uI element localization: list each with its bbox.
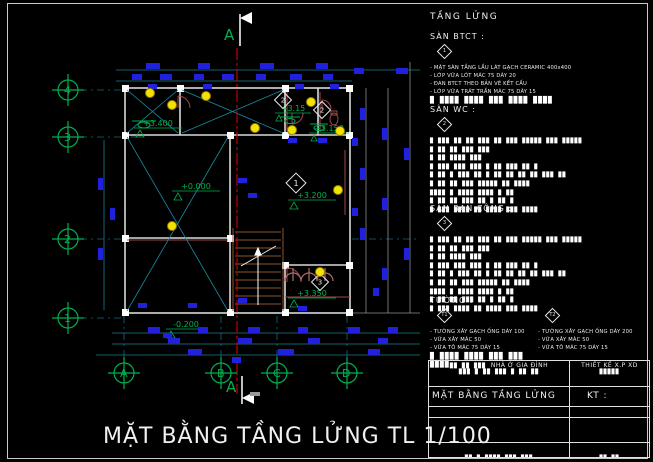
ceiling-light-icon [251,124,260,133]
dimension-value-block [163,333,172,338]
notes-section-tuong: TƯỜNG : T1 - TƯỜNG XÂY GẠCH ỐNG DÀY 100 … [430,296,648,368]
dimension-value-block [382,128,387,140]
titleblock-row3-right: ██ ███ [570,407,649,418]
ceiling-light-icon [336,127,345,136]
illegible-text-line: █ ██ ██ ███ ███ [430,146,648,155]
notes-section-san-btct: SÀN BTCT : 1 - MẶT SÀN TẦNG LẦU LÁT GẠCH… [430,32,648,104]
illegible-text-line: █ ███ ██ ██ ███ ██ ███ █████ ███ █████ [430,236,648,245]
dimension-value-block [295,84,304,89]
notes-section-san-wc: SÀN WC : 2 █ ███ ██ ██ ███ ██ ███ █████ … [430,105,648,214]
illegible-text-line: █ ███ ███ ███ █ ██ ███ ██ █ [430,163,648,172]
ceiling-light-icon [168,222,177,231]
dimension-value-block [98,178,103,190]
svg-text:B: B [217,367,225,380]
dimension-value-block [110,208,115,220]
dimension-value-block [308,338,320,344]
dimension-value-block [382,198,387,210]
dimension-value-block [354,68,364,74]
ceiling-light-icon [168,101,177,110]
cad-drawing-canvas: A A 4 3 2 1 A B C D [0,0,653,462]
dimension-value-block [352,138,358,146]
illegible-text-line: █ ██ ██ ███ █████ ██ ████ [430,279,648,288]
dimension-value-block [318,138,327,143]
section-label: SÀN BTCT : [430,32,648,41]
illegible-text-line: █ ██ ██ ███ ███ [430,245,648,254]
titleblock-row4-right [570,418,649,443]
dimension-value-block [198,327,208,333]
svg-text:3: 3 [64,131,71,144]
dimension-value-block [290,74,302,80]
dimension-value-block [188,303,197,308]
illegible-text-line: █ ██ ████ ███ [430,253,648,262]
illegible-text-line: █ ██ █ ███ ██ █ ██ ██ ██ ██ ███ ██ [430,270,648,279]
dimension-value-block [132,74,142,80]
ceiling-light-icon [202,92,211,101]
toilet-fixture [330,111,338,125]
svg-text:2: 2 [281,97,285,105]
illegible-text-line: ████ █ ████ ████ █ ██ [430,288,648,297]
dimension-value-block [278,349,294,355]
illegible-text-line: █ ███ ██ ██ ███ ██ ███ █████ ███ █████ [430,137,648,146]
svg-text:1: 1 [64,312,71,325]
svg-text:C: C [273,367,281,380]
svg-text:+0.000: +0.000 [181,182,211,191]
svg-text:2: 2 [64,233,71,246]
svg-text:A: A [120,367,128,380]
ceiling-light-icon [146,89,155,98]
titleblock-designer-cell: THIẾT KẾ X.P XD █████ [570,361,649,387]
dimension-value-block [238,178,247,183]
svg-text:+3.200: +3.200 [297,191,327,200]
dimension-value-block [360,168,365,180]
titleblock-project-cell: ██ ██ ███ NHÀ Ở GIA ĐÌNH ███ █ ██ ███ █ … [429,361,570,387]
titleblock-drawing-name-cell: MẶT BẰNG TẦNG LỬNG [429,387,570,407]
dimension-text-blocks [98,63,409,363]
svg-text:+3.15: +3.15 [281,104,306,113]
illegible-bar: █ ████ ████ ███ ████ ████ [430,96,648,104]
dimension-value-block [256,74,266,80]
dimension-value-block [232,357,241,363]
dimension-value-block [360,228,365,240]
dimension-value-block [238,338,252,344]
dimension-value-block [160,74,172,80]
dimension-value-block [298,327,308,333]
dimension-value-block [98,248,103,260]
wall-marker-diamond-icon: T1 [437,308,453,324]
titleblock-row5-right: ██ ██ [570,443,649,457]
dimension-value-block [330,84,339,89]
dimension-value-block [248,327,260,333]
dimension-value-block [138,303,147,308]
svg-text:D: D [342,367,350,380]
svg-text:+3.400: +3.400 [143,119,173,128]
dimension-value-block [222,74,234,80]
section-label: SÀN WC : [430,105,648,114]
ceiling-light-icon [316,268,325,277]
dimension-value-block [316,63,328,69]
svg-text:3: 3 [318,279,322,287]
dimension-value-block [378,338,388,344]
svg-text:-0.200: -0.200 [173,320,199,329]
dimension-value-block [404,248,409,260]
dimension-value-block [352,208,358,216]
dimension-value-block [198,63,210,69]
dimension-value-block [238,298,247,303]
dimension-value-block [360,108,365,120]
finish-marker-diamond-icon: 3 [437,216,453,232]
designer: THIẾT KẾ X.P XD [573,362,646,369]
dimension-value-block [298,306,307,311]
finish-marker-diamond-icon: 1 [437,44,453,60]
notes-heading: TẦNG LỬNG [430,12,648,22]
illegible-text-lines: █ ███ ██ ██ ███ ██ ███ █████ ███ ██████ … [430,137,648,214]
ceiling-light-icon [307,98,316,107]
dimension-value-block [194,74,204,80]
svg-text:2: 2 [320,107,324,115]
illegible-text-line: ████ █ ████ ████ █ ██ [430,189,648,198]
illegible-text-line: █ ██ ████ ███ [430,154,648,163]
svg-text:1: 1 [293,179,298,188]
section-bullets: - MẶT SÀN TẦNG LẦU LÁT GẠCH CERAMIC 400x… [430,64,648,96]
wall-marker-diamond-icon: T2 [545,308,561,324]
dimension-value-block [146,63,160,69]
wall-type-t1: T1 - TƯỜNG XÂY GẠCH ỐNG DÀY 100 - VỮA XÂ… [430,307,538,368]
dimension-value-block [288,138,297,143]
svg-text:4: 4 [64,84,71,97]
dimension-value-block [396,68,408,74]
section-label: SÀN BAN CÔNG : [430,204,648,213]
dimension-value-block [148,327,160,333]
ceiling-light-icon [334,186,343,195]
dimension-value-block [404,148,409,160]
project-name: NHÀ Ở GIA ĐÌNH [491,362,548,369]
dimension-value-block [168,338,180,344]
finish-marker-diamond-icon: 2 [437,117,453,133]
dimension-value-block [260,63,274,69]
dimension-value-block [388,327,398,333]
section-letter-top: A [224,26,235,44]
svg-text:+3.350: +3.350 [297,289,327,298]
drawing-title: MẶT BẰNG TẦNG LỬNG TL 1/100 [103,424,492,449]
notes-panel: TẦNG LỬNG SÀN BTCT : 1 - MẶT SÀN TẦNG LẦ… [430,6,648,356]
dimension-value-block [188,349,202,355]
dimension-value-block [323,74,333,80]
titleblock-kt-cell: KT : [570,387,649,407]
axis-grid-lines [80,90,420,361]
illegible-text-line: █ ██ █ ███ ██ █ ██ ██ ██ ██ ███ ██ [430,171,648,180]
dimension-value-block [203,84,212,89]
wall-type-t2: T2 - TƯỜNG XÂY GẠCH ỐNG DÀY 200 - VỮA XÂ… [538,307,646,368]
dimension-value-block [373,288,379,296]
dimension-value-block [382,268,387,280]
section-label: TƯỜNG : [430,296,648,305]
dimension-value-block [348,327,360,333]
illegible-text-line: █ ███ ███ ███ █ ██ ███ ██ █ [430,262,648,271]
dimension-value-block [368,349,380,355]
ceiling-light-icon [288,126,297,135]
illegible-text-line: █ ██ ██ ███ █████ ██ ████ [430,180,648,189]
titleblock-row3-left: ███ ██ █ [429,407,570,418]
axis-bubbles-rows: 4 3 2 1 [52,74,84,334]
dimension-value-block [248,193,257,198]
